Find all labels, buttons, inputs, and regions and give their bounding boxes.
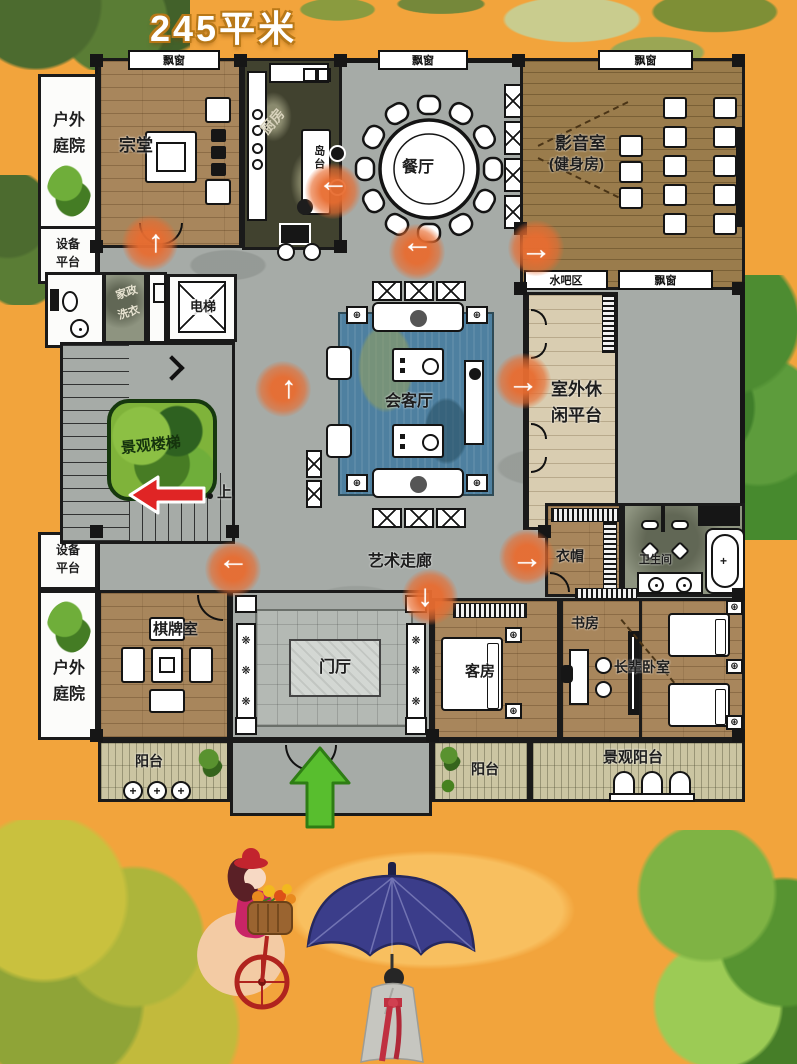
balcony-left-label: 阳台	[135, 753, 163, 771]
courtyard-top-bush	[47, 165, 91, 217]
platform-fold-door-3	[531, 423, 547, 439]
wall-pillar	[732, 282, 745, 295]
water-bar-label: 水吧区	[550, 272, 583, 288]
living-sofa-bottom	[372, 468, 464, 498]
bath-top-fixture	[50, 289, 59, 311]
elder-label: 长辈卧室	[614, 659, 670, 677]
study-office-chair	[561, 665, 573, 683]
study-chair-2	[595, 681, 612, 698]
tree-bottom-right	[630, 830, 797, 1064]
guest-nightstand-1: ⊕	[505, 627, 522, 643]
kitchen-appliance	[279, 223, 311, 245]
wall-pillar	[334, 54, 347, 67]
scenic-arch-1	[613, 771, 635, 795]
living-wall-x-left-1	[306, 450, 322, 478]
living-corner-box-2: ⊕	[466, 306, 488, 324]
foyer-cabinet-right: ❋❋❋	[406, 623, 426, 719]
umbrella-person-illustration	[300, 858, 480, 1064]
bay-window-label: 飘窗	[655, 272, 677, 288]
bath-toilet-2	[670, 541, 690, 561]
elder-nightstand-3: ⊕	[726, 715, 743, 730]
guest-nightstand-2: ⊕	[505, 703, 522, 719]
foyer-cabinet-left: ❋❋❋	[236, 623, 256, 719]
kitchen-stool-4	[303, 243, 321, 261]
guest-wardrobe	[453, 603, 527, 618]
bay-window-label: 飘窗	[412, 52, 434, 68]
room-outdoor-platform: 室外休 闲平台	[523, 292, 618, 530]
elder-bed-1	[668, 613, 730, 657]
flow-arrow-right-icon: →	[508, 220, 564, 276]
flow-arrow-down-icon: →	[402, 569, 458, 625]
guest-label: 客房	[465, 663, 495, 682]
equip-top-label1: 设备	[56, 237, 80, 252]
room-guest: ⊕ ⊕ 客房	[432, 598, 560, 740]
living-sofa-top	[372, 302, 464, 332]
stairs-label: 景观楼梯	[120, 434, 182, 459]
room-living: ⊕ ⊕ ⊕ ⊕ 会客厅	[300, 280, 523, 530]
living-wall-x-bottom-1	[372, 508, 402, 528]
flow-arrow-right-icon: →	[495, 353, 551, 409]
platform-label2: 闲平台	[551, 405, 602, 426]
bay-window-zongtang: 飘窗	[128, 50, 220, 70]
kitchen-counter-left	[247, 71, 267, 221]
media-seat	[663, 184, 687, 206]
bath-counter-topright	[698, 506, 740, 526]
cloak-door-arc	[550, 572, 570, 592]
stairs-up-dot	[207, 493, 213, 499]
media-seat	[663, 213, 687, 235]
entrance-green-arrow-icon	[287, 745, 353, 831]
room-cloakroom: 衣帽	[545, 503, 622, 597]
wall-pillar	[90, 54, 103, 67]
wall-pillar	[514, 282, 527, 295]
floorplan-canvas: 245平米 户外 庭院 设备 平台 设备 平台 户外 庭院 宗堂	[0, 0, 797, 1064]
balcony-pot-2: +	[147, 781, 167, 801]
zongtang-side-table-2	[211, 146, 226, 159]
equip-top-label2: 平台	[56, 255, 80, 270]
room-closet-small	[147, 272, 167, 344]
living-coffee-table-1	[392, 348, 444, 382]
chess-door-arc	[197, 595, 223, 621]
cloak-label: 衣帽	[556, 548, 584, 566]
wall-pillar	[732, 729, 745, 742]
kitchen-stool-3	[277, 243, 295, 261]
cloak-wardrobe-top	[551, 508, 619, 522]
media-seat	[713, 184, 737, 206]
living-wall-x-bottom-2	[404, 508, 434, 528]
wall-pillar	[90, 729, 103, 742]
living-side-chair-1	[326, 346, 352, 380]
zongtang-label: 宗堂	[119, 135, 153, 156]
kitchen-sink-counter	[269, 63, 329, 83]
room-balcony-mid: 阳台	[432, 740, 530, 802]
elder-nightstand-2: ⊕	[726, 659, 743, 674]
living-label: 会客厅	[385, 392, 433, 412]
chess-label: 棋牌室	[153, 621, 198, 640]
chess-chair-bottom	[149, 689, 185, 713]
dining-label: 餐厅	[402, 158, 434, 178]
foyer-pillar-1	[235, 595, 257, 613]
equip-bottom-label2: 平台	[56, 561, 80, 576]
bath-sink-counter	[637, 572, 703, 594]
media-seat	[619, 161, 643, 183]
living-console	[464, 360, 484, 445]
bath-tub: +	[705, 528, 745, 594]
wall-pillar	[90, 240, 103, 253]
room-chess: 棋牌室	[98, 590, 230, 740]
balcony-pot-3: +	[171, 781, 191, 801]
wall-pillar	[234, 54, 247, 67]
balcony-plant	[197, 747, 223, 777]
media-seat	[713, 155, 737, 177]
bay-window-label: 飘窗	[635, 52, 657, 68]
platform-fold-door-1	[531, 309, 547, 325]
media-seat	[663, 97, 687, 119]
bath-wallhung-1	[641, 520, 659, 530]
study-chair-1	[595, 657, 612, 674]
living-corner-box-3: ⊕	[346, 474, 368, 492]
flow-arrow-right-icon: →	[499, 529, 555, 585]
bath-top-toilet	[62, 291, 78, 312]
scenic-balcony-label: 景观阳台	[603, 749, 663, 768]
stairs-up-label: 上	[217, 484, 232, 503]
platform-right-hatch	[602, 295, 615, 353]
bath-wallhung-2	[671, 520, 689, 530]
elevator-label: 电梯	[188, 299, 218, 315]
flow-arrow-up-icon: →	[255, 361, 311, 417]
bath-label: 卫生间	[639, 554, 672, 568]
bath-top-shower	[70, 319, 89, 338]
courtyard-bottom-label2: 庭院	[53, 685, 85, 705]
media-seat	[663, 126, 687, 148]
zongtang-chair-2	[205, 179, 231, 205]
zongtang-side-table-1	[211, 129, 226, 142]
wall-pillar	[226, 525, 239, 538]
media-label2: (健身房)	[549, 156, 604, 175]
flow-arrow-left-icon: →	[389, 224, 445, 280]
foyer-pillar-4	[405, 717, 427, 735]
living-wall-x-top-2	[404, 281, 434, 301]
laundry-label1: 家政	[114, 284, 139, 304]
room-bathroom: + 卫生间	[622, 503, 745, 597]
living-wall-x-top-3	[436, 281, 466, 301]
room-zongtang: 宗堂	[98, 58, 242, 248]
wall-pillar	[732, 54, 745, 67]
wall-pillar	[426, 729, 439, 742]
bay-window-label: 飘窗	[163, 52, 185, 68]
foyer-pillar-3	[235, 717, 257, 735]
media-seat	[663, 155, 687, 177]
room-scenic-balcony: 景观阳台	[530, 740, 745, 802]
wall-pillar	[732, 588, 745, 601]
zongtang-side-table-3	[211, 163, 226, 176]
media-seat	[619, 187, 643, 209]
room-kitchen: 岛台 厨房	[242, 58, 342, 250]
chess-mahjong-table	[151, 647, 183, 683]
courtyard-top-label2: 庭院	[53, 137, 85, 157]
room-foyer: 门厅 ❋❋❋ ❋❋❋	[230, 590, 432, 740]
living-wall-x-left-2	[306, 480, 322, 508]
living-wall-x-top-1	[372, 281, 402, 301]
courtyard-top-label1: 户外	[53, 111, 85, 131]
foyer-label: 门厅	[319, 658, 351, 678]
wall-pillar	[512, 54, 525, 67]
living-side-chair-2	[326, 424, 352, 458]
media-seat	[713, 213, 737, 235]
chess-chair-left	[121, 647, 145, 683]
equip-bottom-label1: 设备	[56, 543, 80, 558]
cloak-wardrobe-right	[603, 522, 617, 596]
page-title: 245平米	[150, 6, 297, 51]
study-label: 书房	[571, 615, 599, 633]
zongtang-chair-1	[205, 97, 231, 123]
living-corner-box-1: ⊕	[346, 306, 368, 324]
balcony-mid-label: 阳台	[471, 761, 499, 779]
foyer-marble-inner: 门厅	[289, 639, 381, 697]
living-corner-box-4: ⊕	[466, 474, 488, 492]
chess-chair-right	[189, 647, 213, 683]
media-seat	[713, 126, 737, 148]
laundry-label2: 洗衣	[116, 304, 141, 324]
wall-pillar	[90, 525, 103, 538]
stairs-direction-chevron	[159, 355, 184, 380]
media-seat	[619, 135, 643, 157]
elder-bed-2	[668, 683, 730, 727]
living-wall-x-bottom-3	[436, 508, 466, 528]
bay-window-dining: 飘窗	[378, 50, 468, 70]
room-elder-bedroom: ⊕ ⊕ ⊕ 长辈卧室	[642, 598, 745, 740]
living-coffee-table-2	[392, 424, 444, 458]
room-elevator: 电梯	[167, 274, 237, 342]
elder-nightstand-1: ⊕	[726, 600, 743, 615]
bay-window-media-bottom: 飘窗	[618, 270, 713, 290]
room-bathroom-top	[45, 272, 105, 348]
courtyard-bottom-bush	[47, 601, 91, 653]
room-courtyard-bottom: 户外 庭院	[38, 590, 98, 740]
bath-wall-chunk	[661, 506, 665, 532]
courtyard-bottom-label1: 户外	[53, 659, 85, 679]
platform-fold-door-4	[531, 457, 547, 473]
scenic-arch-3	[669, 771, 691, 795]
wall-pillar	[334, 240, 347, 253]
balcony-pot-1: +	[123, 781, 143, 801]
media-screen	[736, 127, 744, 227]
flow-arrow-up-icon: →	[122, 215, 178, 271]
scenic-arch-2	[641, 771, 663, 795]
room-balcony-left: 阳台 + + +	[98, 740, 230, 802]
flow-arrow-left-icon: →	[305, 163, 361, 219]
media-label1: 影音室	[555, 133, 606, 154]
balcony-mid-plant-1	[439, 745, 461, 771]
room-laundry: 家政 洗衣	[103, 272, 147, 344]
bay-window-media-top: 飘窗	[598, 50, 693, 70]
flow-arrow-left-icon: →	[205, 541, 261, 597]
balcony-mid-plant-2	[439, 775, 457, 797]
stairs-up-red-arrow-icon	[128, 474, 206, 516]
platform-label1: 室外休	[551, 379, 602, 400]
media-seat	[713, 97, 737, 119]
